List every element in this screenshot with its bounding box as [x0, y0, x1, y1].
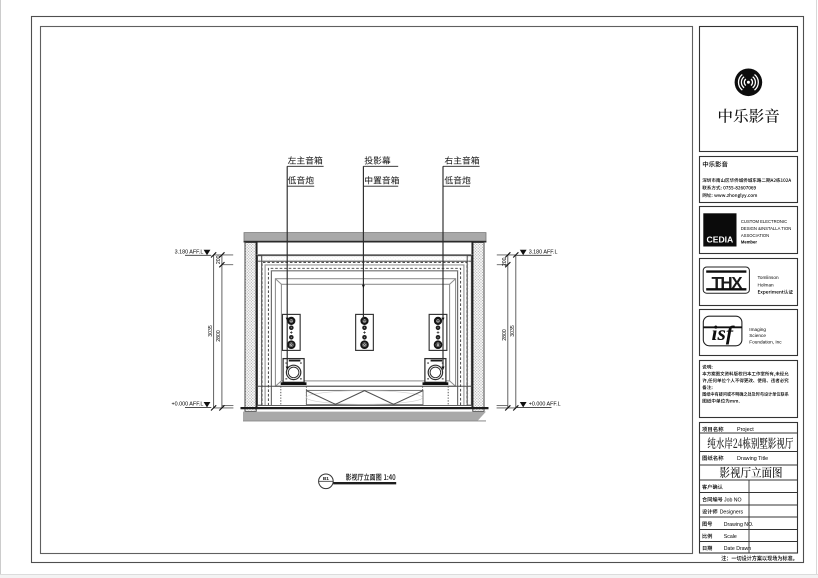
svg-text:Project: Project	[737, 427, 754, 433]
svg-text:Drawing Title: Drawing Title	[737, 456, 768, 462]
svg-text:3035: 3035	[208, 325, 214, 337]
svg-text:Foundation, Inc: Foundation, Inc	[749, 340, 782, 345]
svg-text:CEDIA: CEDIA	[707, 234, 734, 244]
svg-text:Tomlinson: Tomlinson	[758, 275, 779, 280]
svg-text:200: 200	[216, 255, 222, 264]
svg-text:+0.000 AFF.L: +0.000 AFF.L	[171, 402, 203, 408]
svg-text:3035: 3035	[510, 325, 516, 337]
svg-text:3.180 AFF.L: 3.180 AFF.L	[529, 249, 558, 255]
svg-text:B1: B1	[323, 476, 329, 482]
svg-text:Drawing NO.: Drawing NO.	[724, 522, 754, 528]
svg-text:isf: isf	[712, 321, 735, 345]
svg-text:3.180 AFF.L: 3.180 AFF.L	[175, 249, 204, 255]
svg-text:200: 200	[502, 257, 508, 266]
svg-text:+0.000 AFF.L: +0.000 AFF.L	[529, 402, 561, 408]
svg-text:Date Drawn: Date Drawn	[724, 546, 752, 552]
svg-text:CUSTOM ELECTRONIC: CUSTOM ELECTRONIC	[741, 219, 787, 224]
svg-text:DESIGN &INSTALLA TION: DESIGN &INSTALLA TION	[741, 226, 791, 231]
svg-text:Member: Member	[741, 240, 757, 245]
svg-text:Holman: Holman	[758, 282, 775, 287]
svg-text:2800: 2800	[502, 329, 508, 341]
svg-text:Designers: Designers	[720, 510, 744, 516]
svg-text:2800: 2800	[216, 330, 222, 342]
svg-text:Job NO: Job NO	[724, 497, 742, 503]
svg-text:ASSOCIATION: ASSOCIATION	[741, 233, 769, 238]
svg-text:Science: Science	[749, 333, 766, 338]
svg-text:Scale: Scale	[724, 534, 737, 540]
svg-text:Imaging: Imaging	[749, 327, 766, 332]
